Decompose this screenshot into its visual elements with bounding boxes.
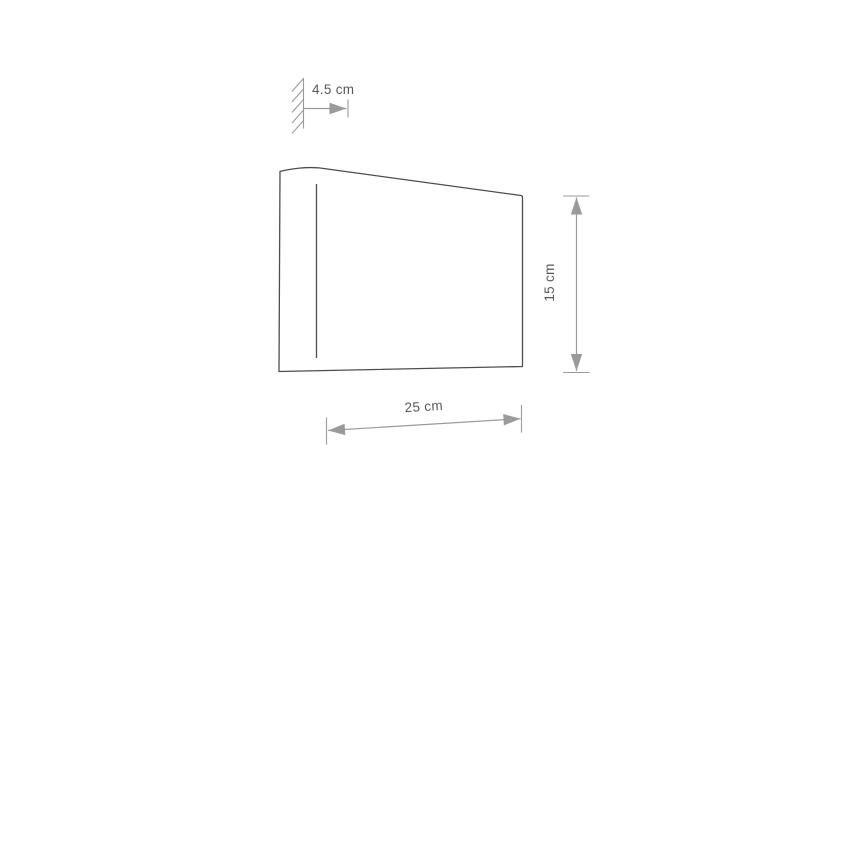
height-dimension-label: 15 cm <box>542 263 557 301</box>
dimension-diagram-canvas: 4.5 cm 15 cm 25 cm <box>0 0 868 868</box>
wall-hatch-line <box>292 121 304 134</box>
depth-dimension-label: 4.5 cm <box>312 82 354 97</box>
wall-mount-symbol: 4.5 cm <box>292 78 354 134</box>
width-dimension: 25 cm <box>327 398 522 445</box>
height-dimension: 15 cm <box>542 196 590 373</box>
wall-hatch-line <box>292 110 304 123</box>
lamp-profile <box>279 168 523 372</box>
wall-hatch-line <box>292 89 304 102</box>
wall-hatch-icon <box>292 79 304 134</box>
width-dimension-label: 25 cm <box>404 398 443 415</box>
wall-hatch-line <box>292 100 304 113</box>
lamp-body-outline <box>279 168 523 372</box>
wall-hatch-line <box>292 79 304 92</box>
depth-dimension: 4.5 cm <box>304 82 355 118</box>
width-dimension-arrow <box>328 419 521 431</box>
wall-lamp-dimension-diagram: 4.5 cm 15 cm 25 cm <box>0 0 868 868</box>
